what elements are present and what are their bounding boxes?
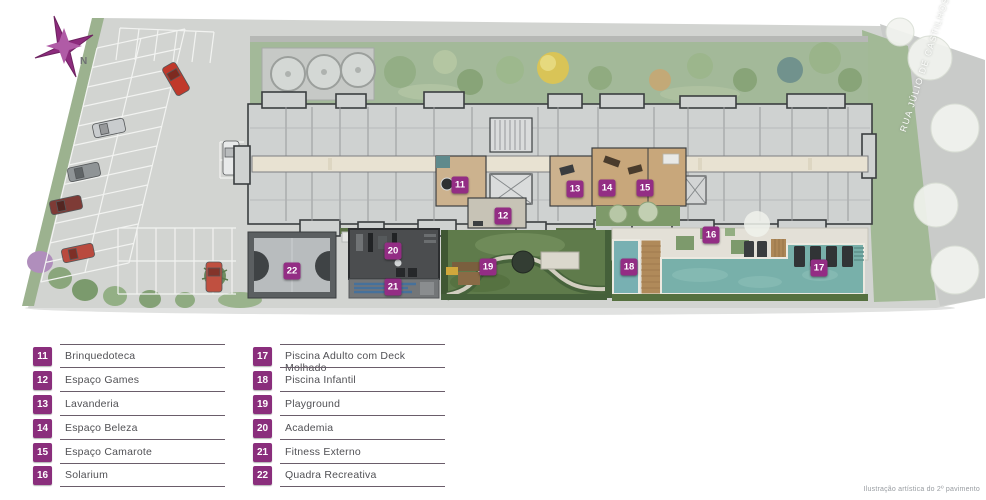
legend-divider [280, 486, 445, 487]
site-plan-page: N RUA JÚLIO DE CASTILHOS 11 12 13 14 15 … [0, 0, 986, 500]
legend-row: 15 Espaço Camarote [33, 443, 225, 467]
legend-number-badge: 11 [33, 347, 52, 366]
plan-badge-lavanderia: 13 [567, 181, 584, 198]
legend-label: Academia [285, 422, 333, 434]
legend-divider [60, 367, 225, 368]
legend-label: Brinquedoteca [65, 350, 135, 362]
legend-number-badge: 20 [253, 419, 272, 438]
legend-label: Lavanderia [65, 398, 119, 410]
legend-number-badge: 15 [33, 443, 52, 462]
legend-label: Piscina Infantil [285, 374, 356, 386]
legend-divider [280, 367, 445, 368]
plan-badge-piscina-infantil: 18 [621, 259, 638, 276]
legend-number-badge: 18 [253, 371, 272, 390]
plan-badge-fitness-externo: 21 [385, 279, 402, 296]
legend-divider [60, 463, 225, 464]
legend-label: Fitness Externo [285, 446, 361, 458]
legend-label: Espaço Camarote [65, 446, 152, 458]
legend-divider [280, 439, 445, 440]
legend-number-badge: 12 [33, 371, 52, 390]
legend-label: Playground [285, 398, 340, 410]
legend-divider [60, 486, 225, 487]
wood-deck [641, 240, 661, 294]
legend-column-right: 17 Piscina Adulto com Deck Molhado 18 Pi… [253, 347, 445, 490]
legend-divider [60, 344, 225, 345]
site-plan-illustration: N RUA JÚLIO DE CASTILHOS 11 12 13 14 15 … [0, 0, 986, 332]
legend-number-badge: 16 [33, 466, 52, 485]
artistic-illustration-caption: Ilustração artística do 2º pavimento [864, 486, 980, 493]
legend-row: 20 Academia [253, 419, 445, 443]
legend-divider [280, 344, 445, 345]
legend-row: 18 Piscina Infantil [253, 371, 445, 395]
legend-divider [60, 391, 225, 392]
legend-label: Solarium [65, 469, 108, 481]
legend-row: 17 Piscina Adulto com Deck Molhado [253, 347, 445, 371]
legend-number-badge: 21 [253, 443, 272, 462]
building-floorplan [234, 92, 876, 242]
legend-row: 11 Brinquedoteca [33, 347, 225, 371]
compass-north-label: N [80, 56, 87, 67]
legend-row: 13 Lavanderia [33, 395, 225, 419]
playground-area [441, 230, 607, 300]
legend-number-badge: 17 [253, 347, 272, 366]
legend-divider [280, 463, 445, 464]
plan-badge-espaco-games: 12 [495, 208, 512, 225]
legend-row: 14 Espaço Beleza [33, 419, 225, 443]
legend-divider [280, 415, 445, 416]
plan-badge-espaco-beleza: 14 [599, 180, 616, 197]
legend-number-badge: 19 [253, 395, 272, 414]
plan-badge-espaco-camarote: 15 [637, 180, 654, 197]
legend-label: Espaço Beleza [65, 422, 138, 434]
legend-label: Espaço Games [65, 374, 139, 386]
plan-badge-academia: 20 [385, 243, 402, 260]
plan-badge-playground: 19 [480, 259, 497, 276]
legend-row: 19 Playground [253, 395, 445, 419]
legend-row: 12 Espaço Games [33, 371, 225, 395]
legend-column-left: 11 Brinquedoteca 12 Espaço Games 13 Lava… [33, 347, 225, 490]
legend-row: 21 Fitness Externo [253, 443, 445, 467]
site-plan-drawing [0, 0, 986, 332]
legend-row: 16 Solarium [33, 466, 225, 490]
legend-number-badge: 13 [33, 395, 52, 414]
plan-badge-piscina-adulto: 17 [811, 260, 828, 277]
plan-badge-solarium: 16 [703, 227, 720, 244]
legend-number-badge: 22 [253, 466, 272, 485]
legend-label: Quadra Recreativa [285, 469, 377, 481]
plan-badge-quadra: 22 [284, 263, 301, 280]
legend-divider [280, 391, 445, 392]
plan-badge-brinquedoteca: 11 [452, 177, 469, 194]
legend-row: 22 Quadra Recreativa [253, 466, 445, 490]
legend-number-badge: 14 [33, 419, 52, 438]
legend-divider [60, 415, 225, 416]
legend-divider [60, 439, 225, 440]
